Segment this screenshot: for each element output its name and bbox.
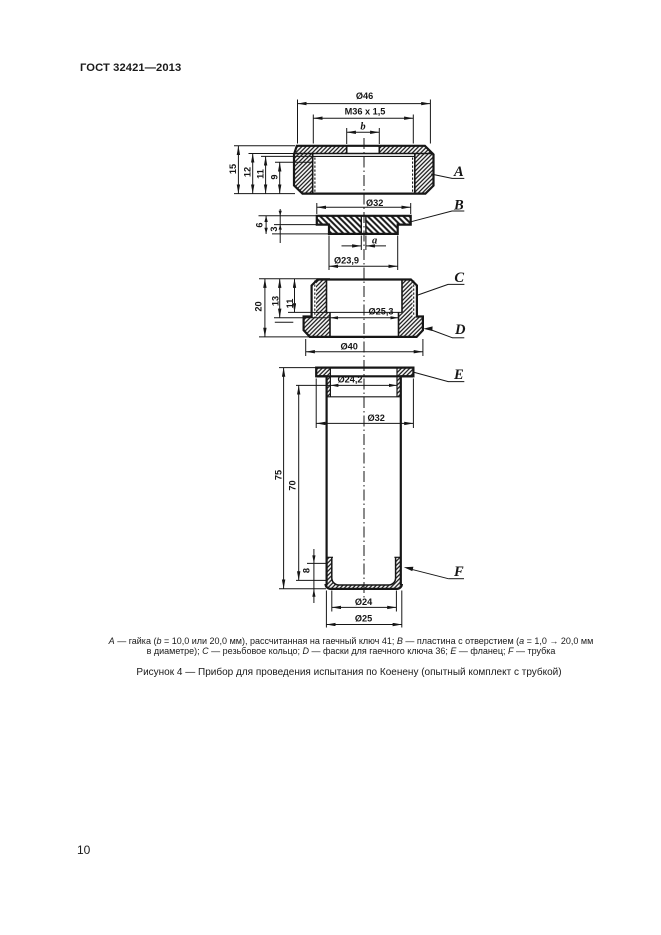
svg-text:A: A [453,164,464,180]
svg-text:M36 x 1,5: M36 x 1,5 [345,106,386,116]
svg-text:a: a [372,236,377,247]
svg-text:12: 12 [242,167,252,177]
svg-text:75: 75 [273,470,283,480]
svg-text:6: 6 [255,222,265,227]
svg-text:Ø23,9: Ø23,9 [334,256,359,266]
svg-text:Ø32: Ø32 [366,198,383,208]
svg-text:F: F [453,564,464,580]
svg-text:b: b [360,122,365,133]
svg-text:11: 11 [256,169,266,179]
svg-text:3: 3 [269,226,279,231]
svg-text:Ø24: Ø24 [355,597,373,607]
svg-text:70: 70 [288,480,298,490]
svg-text:Ø25: Ø25 [355,613,372,623]
svg-text:Ø40: Ø40 [341,341,358,351]
svg-text:Ø32: Ø32 [368,413,385,423]
svg-text:9: 9 [270,174,280,179]
svg-text:Ø24,2: Ø24,2 [337,375,362,385]
svg-text:8: 8 [302,568,312,573]
svg-text:20: 20 [254,301,264,311]
svg-text:Ø46: Ø46 [356,91,373,101]
svg-text:C: C [454,270,464,286]
svg-text:D: D [454,322,466,338]
svg-text:11: 11 [285,299,295,309]
svg-text:13: 13 [271,296,281,306]
svg-text:B: B [453,197,464,213]
svg-text:Ø25,3: Ø25,3 [368,306,393,316]
svg-text:E: E [453,367,464,383]
svg-text:15: 15 [228,164,238,174]
